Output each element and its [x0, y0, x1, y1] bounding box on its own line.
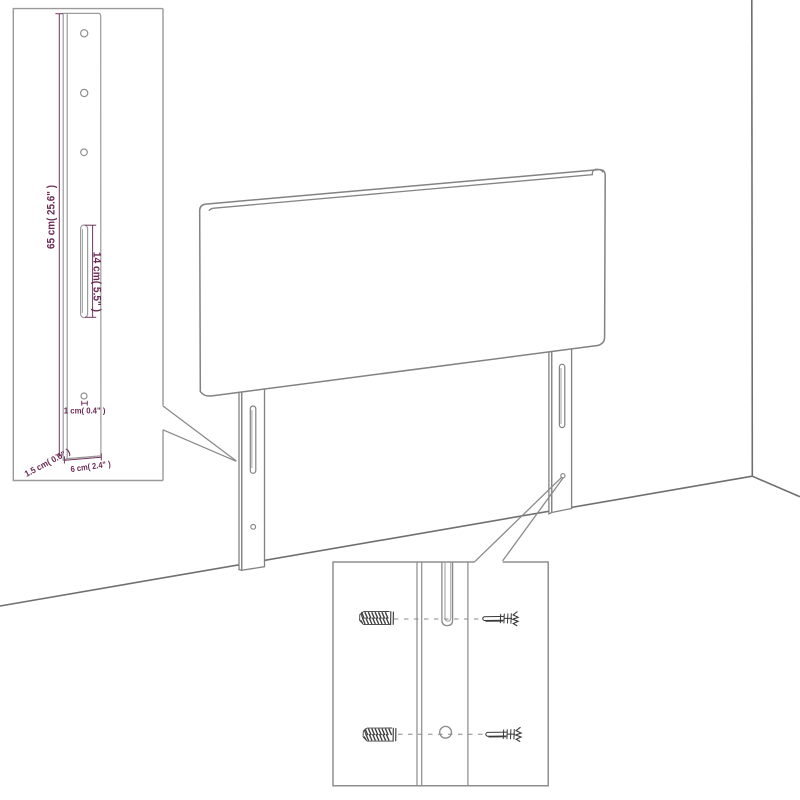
svg-text:6 cm( 2.4" ): 6 cm( 2.4" ) — [70, 459, 112, 474]
svg-text:14 cm( 5.5" ): 14 cm( 5.5" ) — [90, 252, 103, 313]
svg-text:1 cm( 0.4" ): 1 cm( 0.4" ) — [64, 406, 106, 415]
svg-text:65 cm( 25.6" ): 65 cm( 25.6" ) — [46, 185, 58, 249]
